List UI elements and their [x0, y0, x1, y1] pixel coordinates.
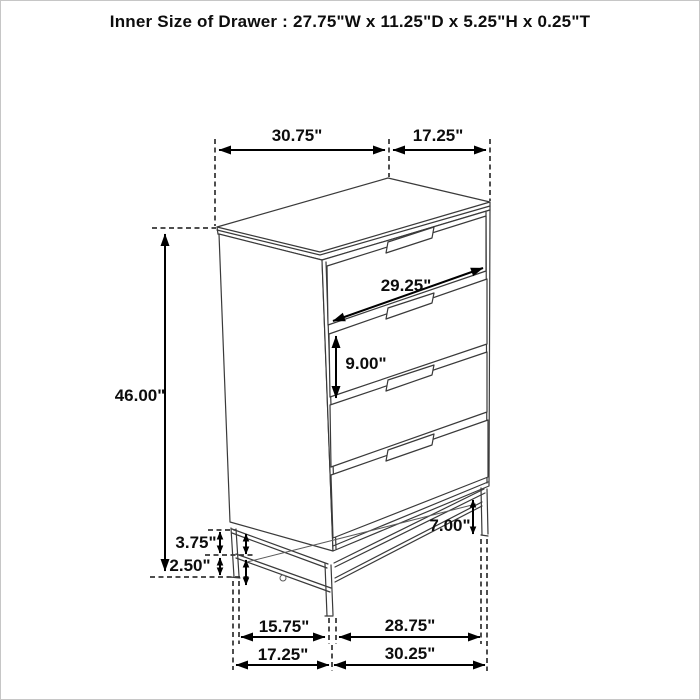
label-span-front-inner: 28.75" [385, 616, 436, 636]
label-span-front-outer: 30.25" [385, 644, 436, 664]
label-base-height: 7.00" [429, 516, 470, 536]
label-top-width: 30.75" [272, 126, 323, 146]
dimension-diagram-page: { "title": "Inner Size of Drawer : 27.75… [0, 0, 700, 700]
cabinet-side-panel [219, 234, 333, 551]
label-rail-gap: 3.75" [175, 533, 216, 553]
label-drawer-width: 29.25" [381, 276, 432, 296]
stretcher-connector [280, 575, 286, 581]
chest-line-drawing [0, 0, 700, 700]
label-drawer-height: 9.00" [345, 354, 386, 374]
label-top-depth: 17.25" [413, 126, 464, 146]
label-span-side-outer: 17.25" [258, 645, 309, 665]
label-span-side-inner: 15.75" [259, 617, 310, 637]
label-overall-height: 46.00" [115, 386, 166, 406]
label-floor-gap: 2.50" [169, 556, 210, 576]
